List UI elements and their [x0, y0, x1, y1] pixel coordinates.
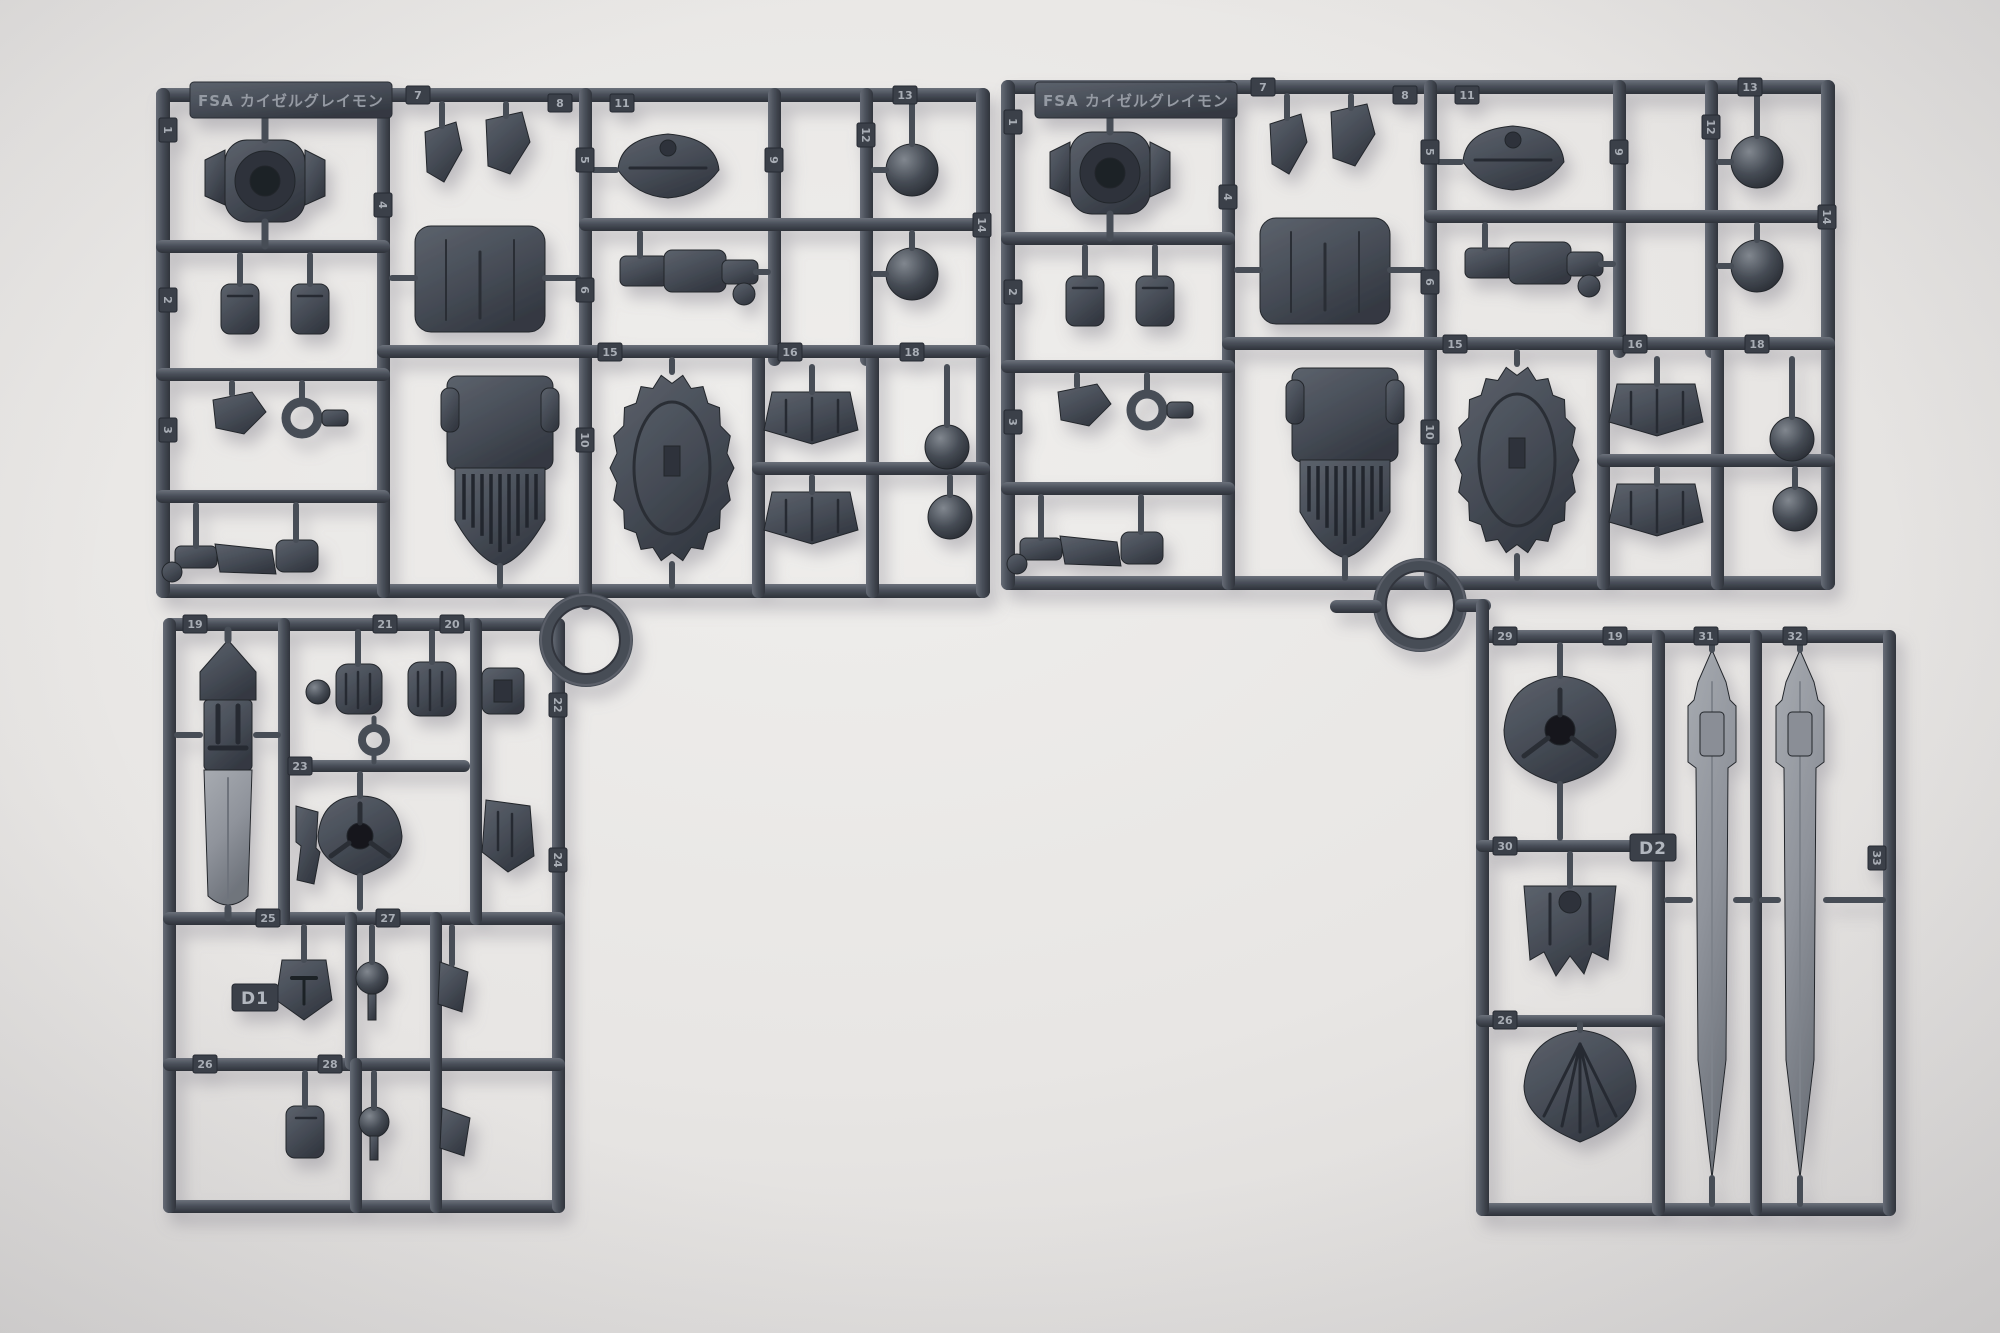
part-number-tag: 31 — [1694, 627, 1718, 645]
tag-number: 4 — [1221, 193, 1234, 201]
part-number-tag: 25 — [256, 909, 280, 927]
molded-part — [1136, 276, 1174, 326]
part-number-tag: 11 — [1455, 86, 1479, 104]
molded-part — [286, 1106, 324, 1158]
molded-part — [447, 376, 553, 470]
part-number-tag: 4 — [374, 193, 392, 217]
molded-part — [291, 284, 329, 334]
frame-bar — [163, 1058, 565, 1071]
part-number-tag: 13 — [1738, 78, 1762, 96]
part-number-tag: 16 — [778, 343, 802, 361]
part-number-tag: 22 — [549, 693, 567, 717]
part-number-tag: 19 — [1603, 627, 1627, 645]
molded-part — [733, 283, 755, 305]
part-number-tag: 11 — [610, 94, 634, 112]
molded-part — [356, 962, 388, 994]
part-number-tag: 3 — [1004, 410, 1022, 434]
tag-number: 1 — [1006, 118, 1019, 126]
photo-canvas: FSA カイゼルグレイモン D1 12345678910111213141516… — [0, 0, 2000, 1333]
frame-bar — [1001, 482, 1235, 495]
tag-number: 5 — [1423, 148, 1436, 156]
part-number-tag: 15 — [1443, 335, 1467, 353]
tag-number: 31 — [1698, 630, 1713, 643]
molded-part — [368, 994, 376, 1020]
tag-number: 19 — [1607, 630, 1622, 643]
part-number-tag: 1 — [159, 118, 177, 142]
molded-part — [1770, 417, 1814, 461]
molded-part — [1007, 554, 1027, 574]
molded-part — [660, 140, 676, 156]
frame-bar — [1222, 80, 1235, 590]
tag-number: 18 — [1749, 338, 1764, 351]
frame-bar — [156, 88, 170, 598]
brand-label: FSA カイゼルグレイモン — [1043, 92, 1229, 110]
part-number-tag: 21 — [373, 615, 397, 633]
tag-number: 13 — [897, 89, 912, 102]
molded-part — [347, 823, 373, 849]
part-number-tag: 16 — [1623, 335, 1647, 353]
tag-number: 22 — [551, 697, 564, 712]
part-number-tag: 23 — [288, 757, 312, 775]
frame-bar — [1222, 337, 1437, 350]
brand-label: FSA カイゼルグレイモン — [198, 92, 384, 110]
molded-part — [296, 806, 320, 884]
part-number-tag: 24 — [549, 848, 567, 872]
molded-part — [370, 1136, 378, 1160]
molded-part — [1505, 132, 1521, 148]
tag-number: 16 — [782, 346, 798, 359]
frame-bar — [1652, 630, 1665, 1216]
molded-part — [1578, 275, 1600, 297]
tag-number: 14 — [975, 217, 988, 233]
tag-number: 29 — [1497, 630, 1512, 643]
molded-part — [250, 166, 280, 196]
runner-id-tag: D1 — [241, 989, 269, 1009]
tag-number: 6 — [1423, 278, 1436, 286]
part-number-tag: 33 — [1868, 846, 1886, 870]
molded-part — [1509, 438, 1525, 468]
molded-part — [1559, 891, 1581, 913]
tag-number: 6 — [578, 286, 591, 294]
molded-part — [221, 284, 259, 334]
tag-number: 3 — [161, 426, 174, 434]
molded-part — [1788, 712, 1812, 756]
part-number-tag: 20 — [440, 615, 464, 633]
runner-id-tag: D2 — [1639, 839, 1667, 859]
molded-part — [441, 388, 459, 432]
molded-part — [928, 495, 972, 539]
molded-part — [925, 425, 969, 469]
molded-part — [1020, 538, 1062, 560]
molded-part — [162, 562, 182, 582]
part-number-tag: 26 — [193, 1055, 217, 1073]
part-number-tag: 15 — [598, 343, 622, 361]
part-number-tag: 2 — [159, 288, 177, 312]
molded-part — [1509, 242, 1571, 284]
frame-bar — [156, 368, 390, 381]
part-number-tag: 28 — [318, 1055, 342, 1073]
frame-bar — [1001, 360, 1235, 373]
molded-part — [1050, 142, 1070, 197]
part-number-tag: 8 — [1393, 86, 1417, 104]
tag-number: 3 — [1006, 418, 1019, 426]
part-number-tag: 27 — [376, 909, 400, 927]
tag-number: 12 — [1704, 119, 1717, 134]
tag-number: 30 — [1497, 840, 1513, 853]
molded-part — [620, 256, 668, 286]
part-number-tag: 9 — [765, 148, 783, 172]
molded-part — [1150, 142, 1170, 197]
frame-bar — [377, 345, 592, 358]
frame-bar — [156, 490, 390, 503]
tag-number: 33 — [1870, 850, 1883, 865]
tag-number: 8 — [1401, 89, 1409, 102]
tag-number: 24 — [551, 852, 564, 868]
tag-number: 1 — [161, 126, 174, 134]
tag-number: 9 — [767, 156, 780, 164]
frame-bar — [1750, 630, 1762, 1216]
part-number-tag: 1 — [1004, 110, 1022, 134]
tag-number: 23 — [292, 760, 307, 773]
runner-photo: FSA カイゼルグレイモン D1 12345678910111213141516… — [0, 0, 2000, 1333]
tag-number: 9 — [1612, 148, 1625, 156]
frame-bar — [1330, 600, 1382, 613]
molded-part — [204, 700, 252, 770]
tag-number: 7 — [1259, 81, 1267, 94]
tag-number: 13 — [1742, 81, 1757, 94]
molded-part — [1066, 276, 1104, 326]
molded-part — [1386, 380, 1404, 424]
frame-bar — [1476, 630, 1896, 643]
molded-part — [1292, 368, 1398, 462]
frame-bar — [1001, 80, 1015, 590]
molded-part — [205, 150, 225, 205]
molded-part — [1095, 158, 1125, 188]
part-number-tag: 10 — [576, 428, 594, 452]
part-number-tag: 6 — [576, 278, 594, 302]
part-number-tag: 6 — [1421, 270, 1439, 294]
part-number-tag: 18 — [1745, 335, 1769, 353]
molded-part — [1567, 252, 1603, 276]
part-number-tag: 3 — [159, 418, 177, 442]
tag-number: 11 — [614, 97, 629, 110]
tag-number: 8 — [556, 97, 564, 110]
part-number-tag: 12 — [857, 123, 875, 147]
tag-number: 32 — [1787, 630, 1802, 643]
tag-number: 7 — [414, 89, 422, 102]
molded-part — [886, 144, 938, 196]
tag-number: 15 — [1447, 338, 1462, 351]
part-number-tag: 4 — [1219, 185, 1237, 209]
part-number-tag: 12 — [1702, 115, 1720, 139]
tag-number: 11 — [1459, 89, 1474, 102]
frame-bar — [1476, 630, 1489, 1216]
part-number-tag: 7 — [1251, 78, 1275, 96]
molded-part — [886, 248, 938, 300]
molded-part — [494, 680, 512, 702]
frame-bar — [163, 618, 565, 631]
tag-number: 5 — [578, 156, 591, 164]
molded-part — [276, 540, 318, 572]
tag-number: 25 — [260, 912, 275, 925]
part-number-tag: 30 — [1493, 837, 1517, 855]
frame-bar — [1476, 1203, 1896, 1216]
frame-bar — [156, 240, 390, 253]
frame-bar — [1424, 210, 1835, 223]
molded-part — [722, 260, 758, 284]
part-number-tag: 10 — [1421, 420, 1439, 444]
tag-number: 14 — [1820, 209, 1833, 225]
molded-part — [359, 1107, 389, 1137]
molded-part — [1731, 240, 1783, 292]
part-number-tag: 14 — [1818, 205, 1836, 229]
molded-part — [322, 410, 348, 426]
part-number-tag: 7 — [406, 86, 430, 104]
molded-part — [1731, 136, 1783, 188]
tag-number: 26 — [1497, 1014, 1513, 1027]
frame-bar — [377, 88, 390, 598]
frame-bar — [1476, 599, 1489, 643]
molded-part — [1121, 532, 1163, 564]
molded-part — [305, 150, 325, 205]
frame-bar — [345, 912, 357, 1070]
part-number-tag: 8 — [548, 94, 572, 112]
tag-number: 18 — [904, 346, 919, 359]
molded-part — [306, 680, 330, 704]
tag-number: 12 — [859, 127, 872, 142]
tag-number: 28 — [322, 1058, 337, 1071]
part-number-tag: 19 — [183, 615, 207, 633]
frame-bar — [976, 88, 990, 598]
frame-bar — [163, 1200, 565, 1213]
molded-part — [1700, 712, 1724, 756]
part-number-tag: 18 — [900, 343, 924, 361]
tag-number: 2 — [1006, 288, 1019, 296]
frame-bar — [470, 618, 482, 925]
frame-bar — [290, 760, 470, 772]
part-number-tag: 5 — [576, 148, 594, 172]
tag-number: 10 — [1423, 424, 1436, 440]
frame-bar — [163, 912, 565, 925]
part-number-tag: 5 — [1421, 140, 1439, 164]
part-number-tag: 2 — [1004, 280, 1022, 304]
frame-bar — [579, 218, 990, 231]
molded-part — [1167, 402, 1193, 418]
molded-part — [664, 446, 680, 476]
tag-number: 21 — [377, 618, 392, 631]
frame-bar — [1821, 80, 1835, 590]
part-number-tag: 13 — [893, 86, 917, 104]
tag-number: 4 — [376, 201, 389, 209]
molded-part — [1465, 248, 1513, 278]
tag-number: 10 — [578, 432, 591, 448]
part-number-tag: 29 — [1493, 627, 1517, 645]
tag-number: 2 — [161, 296, 174, 304]
molded-part — [1545, 715, 1575, 745]
molded-part — [1286, 380, 1304, 424]
tag-number: 27 — [380, 912, 395, 925]
tag-number: 19 — [187, 618, 202, 631]
tag-number: 16 — [1627, 338, 1643, 351]
part-number-tag: 32 — [1783, 627, 1807, 645]
tag-number: 26 — [197, 1058, 213, 1071]
part-number-tag: 14 — [973, 213, 991, 237]
frame-bar — [1883, 630, 1896, 1216]
molded-part — [408, 662, 456, 716]
frame-bar — [1001, 232, 1235, 245]
part-number-tag: 9 — [1610, 140, 1628, 164]
frame-bar — [350, 1058, 362, 1213]
tag-number: 15 — [602, 346, 617, 359]
molded-part — [541, 388, 559, 432]
molded-part — [175, 546, 217, 568]
molded-part — [664, 250, 726, 292]
part-number-tag: 26 — [1493, 1011, 1517, 1029]
molded-part — [1773, 487, 1817, 531]
frame-bar — [1001, 576, 1835, 590]
tag-number: 20 — [444, 618, 460, 631]
